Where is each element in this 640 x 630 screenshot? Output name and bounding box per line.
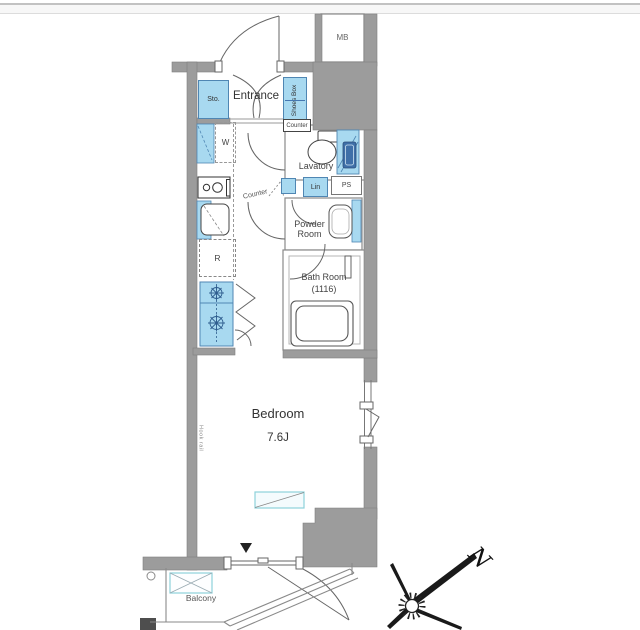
kitchen-sink-icon xyxy=(197,201,229,239)
pipe-space-box: PS xyxy=(331,176,362,195)
compass-sun-icon xyxy=(406,600,419,613)
floor-plan-drawing: N xyxy=(0,0,640,630)
storage-box: Sto. xyxy=(198,80,229,119)
washer-box: W xyxy=(215,122,236,163)
balcony-wall-stub xyxy=(140,618,156,630)
storage-label: Sto. xyxy=(207,96,219,103)
balcony-drain-icon xyxy=(147,572,155,580)
wall-closet-bottom xyxy=(193,348,235,355)
linen-label: Lin xyxy=(311,184,320,191)
refrigerator-label: R xyxy=(214,253,220,263)
wall-right-mid xyxy=(364,358,377,382)
wall-right-upper xyxy=(364,130,377,358)
wall-block-upper-right xyxy=(313,62,377,130)
entrance-frame-left xyxy=(215,61,222,72)
wall-left xyxy=(187,62,197,570)
stove-icon xyxy=(198,177,230,198)
powder-room-label: Powder Room xyxy=(287,219,332,240)
balcony-door-frame-right xyxy=(296,557,303,569)
bath-room-label: Bath Room xyxy=(291,272,357,282)
washer-label: W xyxy=(222,138,230,147)
door-direction-marker xyxy=(240,543,252,553)
bedroom-label: Bedroom xyxy=(238,407,318,422)
compass: N xyxy=(387,541,496,630)
bedroom-counter-icon xyxy=(255,492,304,508)
hook-rail-label: Hook rail xyxy=(197,425,203,451)
bedroom-door-arc xyxy=(235,330,251,346)
shoes-box: Shoes Box xyxy=(283,77,307,123)
compass-north-label: N xyxy=(462,541,496,575)
refrigerator-box: R xyxy=(199,239,236,277)
closet xyxy=(200,282,255,346)
lavatory-label: Lavatory xyxy=(288,161,344,171)
entrance-door-arc xyxy=(220,16,279,62)
balcony-door-frame-left xyxy=(224,557,231,569)
balcony-label: Balcony xyxy=(176,594,226,604)
bathtub-icon xyxy=(291,301,353,346)
washer-space xyxy=(197,124,214,163)
entrance-label: Entrance xyxy=(228,90,284,103)
hall-door-arc-upper xyxy=(248,133,285,170)
closet-folding-door xyxy=(236,284,255,340)
wall-bottom xyxy=(143,557,227,570)
wall-top-right xyxy=(364,14,377,66)
bedroom-size-label: 7.6J xyxy=(238,432,318,445)
powder-basin-icon xyxy=(329,200,361,242)
hall-door-arc-lower xyxy=(248,202,285,239)
balcony-hatch-box xyxy=(170,573,212,593)
pipe-space-label: PS xyxy=(342,182,351,189)
counter-upper-box: Counter xyxy=(283,119,311,132)
bedroom-window xyxy=(360,380,379,449)
bath-room-size-label: (1116) xyxy=(291,284,357,294)
hall-cabinet-box xyxy=(281,178,296,194)
shoes-box-shelf-line xyxy=(285,100,305,101)
entrance-frame-right xyxy=(277,61,284,72)
floor-plan: N Sto. Shoes Box W Counter Lin PS R Entr… xyxy=(0,0,640,630)
wall-under-bath xyxy=(283,350,377,358)
linen-box: Lin xyxy=(303,177,328,197)
counter-upper-label: Counter xyxy=(286,123,307,129)
wall-pillar-bottom-right xyxy=(303,508,377,567)
hanger-pipe-icon xyxy=(208,315,225,332)
meter-box-label: MB xyxy=(321,33,364,42)
